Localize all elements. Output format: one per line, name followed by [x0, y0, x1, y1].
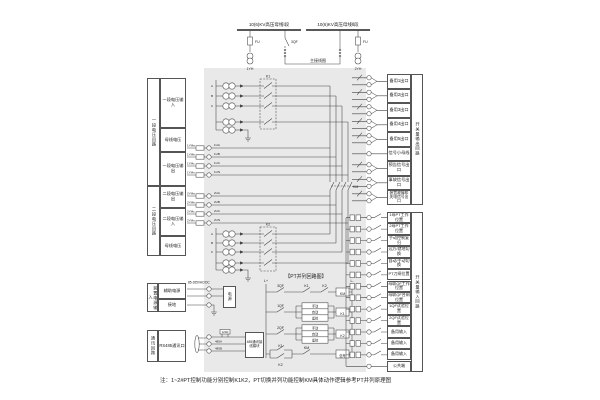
rs485-circuit: 120Ω 485A 485B	[195, 330, 245, 354]
svg-text:KM: KM	[304, 346, 309, 350]
section2-pt-windings: A B C K2	[211, 223, 348, 282]
output-label: 备用3出口	[387, 103, 411, 118]
pt2-label: 2YH	[355, 67, 362, 71]
input-label: 2母PT工作位置	[387, 223, 411, 234]
input-label: 母联QF工作位置	[387, 281, 411, 292]
power-input-circuit: 85-265VAC/DC	[187, 281, 223, 316]
svg-text:1QF: 1QF	[277, 304, 284, 308]
group3-side-label: 装置电源输入	[147, 283, 158, 312]
svg-text:K2: K2	[340, 334, 344, 338]
svg-text:2QF: 2QF	[277, 326, 284, 330]
group1-cell-output: 一段电压输出	[160, 152, 186, 186]
svg-text:2UB: 2UB	[214, 200, 220, 204]
phase-a-label: A	[211, 84, 213, 88]
pt-parallel-title: 【PT并列回路图】	[285, 273, 326, 280]
group2-cell-bus-voltage: 母线电压	[160, 236, 186, 256]
group2-cell-output: 二段电压输出	[160, 186, 186, 208]
svg-text:2YMb: 2YMb	[187, 200, 195, 204]
input-label: 备用输入	[387, 349, 411, 360]
input-label: 备用输入	[387, 338, 411, 349]
group3-cell-ground: 接地	[158, 299, 186, 312]
svg-text:手动: 手动	[312, 326, 318, 331]
svg-text:1UB: 1UB	[214, 152, 220, 156]
group2-cell-input: 二段电压输入	[160, 208, 186, 236]
svg-text:C: C	[211, 250, 214, 254]
svg-text:3QF: 3QF	[277, 284, 284, 288]
output-label: 备用4出口	[387, 118, 411, 133]
group3-cell-aux-power: 辅助电源	[158, 283, 186, 299]
rs485a-label: 485A	[215, 340, 222, 344]
rs485b-label: 485B	[215, 347, 222, 351]
switch-output-rows	[352, 75, 387, 203]
bus2-label: 10(6)KV高压母线Ⅱ段	[317, 21, 359, 28]
svg-text:KM: KM	[340, 292, 345, 296]
sec2-terminal-rows: 2YMa2UA 2YMb2UB 2YMc2UC 2YMn2UN	[187, 191, 348, 225]
svg-text:自动: 自动	[312, 310, 318, 315]
pt1-label: 1YH	[247, 67, 254, 71]
svg-text:1UA: 1UA	[214, 143, 220, 147]
input-label: 母联QF合闸位置	[387, 292, 411, 303]
svg-text:1YMb: 1YMb	[187, 152, 195, 156]
input-label: 2QF试验位置	[387, 315, 411, 326]
svg-text:1UN: 1UN	[214, 170, 220, 174]
output-label: 备用2出口	[387, 89, 411, 104]
footnote: 注：1~2#PT控制功能分别控制K1K2，PT切换并列功能控制KM具体动作逻辑参…	[160, 376, 391, 384]
svg-text:2UC: 2UC	[214, 209, 221, 213]
svg-text:2UN: 2UN	[214, 218, 220, 222]
svg-text:1YMn: 1YMn	[187, 170, 195, 174]
input-label: 手动控制复归	[387, 235, 411, 246]
power-module-box: 电源	[223, 286, 236, 308]
main-wiring-diagram: 10(6)KV高压母线Ⅰ段 10(6)KV高压母线Ⅱ段 FU 1YH 3QF 主…	[237, 21, 370, 71]
rail-minus-label: L-	[350, 279, 354, 283]
output-label: 装置故障和失电信号出口	[387, 190, 411, 205]
svg-text:信号: 信号	[339, 353, 345, 358]
group4-cell-rs485-port: RS485通讯口	[158, 330, 186, 362]
comm-module-box: 485通讯接线模块	[245, 332, 264, 358]
svg-text:K2: K2	[278, 363, 282, 367]
svg-text:K1: K1	[340, 312, 344, 316]
svg-text:2YMn: 2YMn	[187, 218, 195, 222]
output-label: 预告信号出口	[387, 161, 411, 176]
input-label: PT刀闸位置	[387, 269, 411, 280]
svg-text:遥控: 遥控	[312, 316, 319, 321]
svg-text:1YMc: 1YMc	[187, 161, 195, 165]
input-label: 备用输入	[387, 326, 411, 337]
input-label: 远方/就地切换	[387, 246, 411, 257]
svg-text:1UC: 1UC	[214, 161, 221, 165]
input-label: 1QF试验位置	[387, 303, 411, 314]
bus1-label: 10(6)KV高压母线Ⅰ段	[249, 21, 290, 28]
rail-plus-label: L+	[264, 279, 268, 283]
svg-text:K2: K2	[322, 284, 326, 288]
svg-text:遥控: 遥控	[312, 338, 319, 343]
qf-label: 3QF	[291, 40, 298, 44]
svg-text:2UA: 2UA	[214, 191, 220, 195]
fu1-label: FU	[255, 40, 260, 44]
svg-text:手动: 手动	[312, 304, 318, 309]
pt-parallel-ladder: L+ L- 3QF K1 K2 KM 1QF 手动 自动 遥控 K1 2QF 手…	[264, 279, 354, 367]
power-range-label: 85-265VAC/DC	[188, 281, 210, 285]
output-label: 事故信号出口	[387, 176, 411, 191]
input-label: 自动/手动切换	[387, 258, 411, 269]
output-label: 信号小母线	[387, 147, 411, 162]
svg-text:A: A	[211, 232, 213, 236]
group1-cell-bus-voltage: 母线电压	[160, 128, 186, 152]
svg-text:1YMa: 1YMa	[187, 143, 195, 147]
svg-text:K1: K1	[278, 344, 282, 348]
svg-text:2YMc: 2YMc	[187, 209, 195, 213]
km-parallel-contacts: KM	[330, 86, 358, 263]
svg-text:自动: 自动	[312, 332, 318, 337]
input-label: 1母PT工作位置	[387, 212, 411, 223]
termination-resistor-label: 120Ω	[222, 330, 229, 334]
svg-text:2YMa: 2YMa	[187, 191, 195, 195]
group1-cell-input: 一段电压输入	[160, 78, 186, 128]
output-section-label: 开关量输出回路	[411, 74, 423, 205]
input-section-label: 开关量输入回路	[411, 212, 423, 372]
group4-side-label: 通讯回路	[147, 330, 158, 362]
group1-side-label: 一段电压回路	[147, 78, 160, 186]
group2-side-label: 二段电压回路	[147, 186, 160, 256]
svg-text:K1: K1	[304, 284, 308, 288]
k1-contact-group-label: K1	[266, 75, 270, 79]
sec1-terminal-rows: 1YMa1UA 1YMb1UB 1YMc1UC 1YMn1UN	[187, 143, 348, 177]
phase-b-label: B	[211, 94, 213, 98]
main-wiring-caption: 主接线图	[310, 57, 326, 63]
input-label: 公共端	[387, 361, 411, 372]
section1-pt-windings: A B C K1	[211, 75, 348, 142]
phase-c-label: C	[211, 104, 214, 108]
k2-contact-group-label: K2	[266, 223, 270, 227]
pt-terminal-diagram: 10(6)KV高压母线Ⅰ段 10(6)KV高压母线Ⅱ段 FU 1YH 3QF 主…	[0, 0, 600, 400]
schematic-layer: 10(6)KV高压母线Ⅰ段 10(6)KV高压母线Ⅱ段 FU 1YH 3QF 主…	[0, 0, 600, 400]
fu2-label: FU	[363, 40, 368, 44]
output-label: 备用5出口	[387, 132, 411, 147]
svg-text:B: B	[211, 241, 213, 245]
km-label: KM	[353, 185, 358, 189]
output-label: 备用1出口	[387, 74, 411, 89]
